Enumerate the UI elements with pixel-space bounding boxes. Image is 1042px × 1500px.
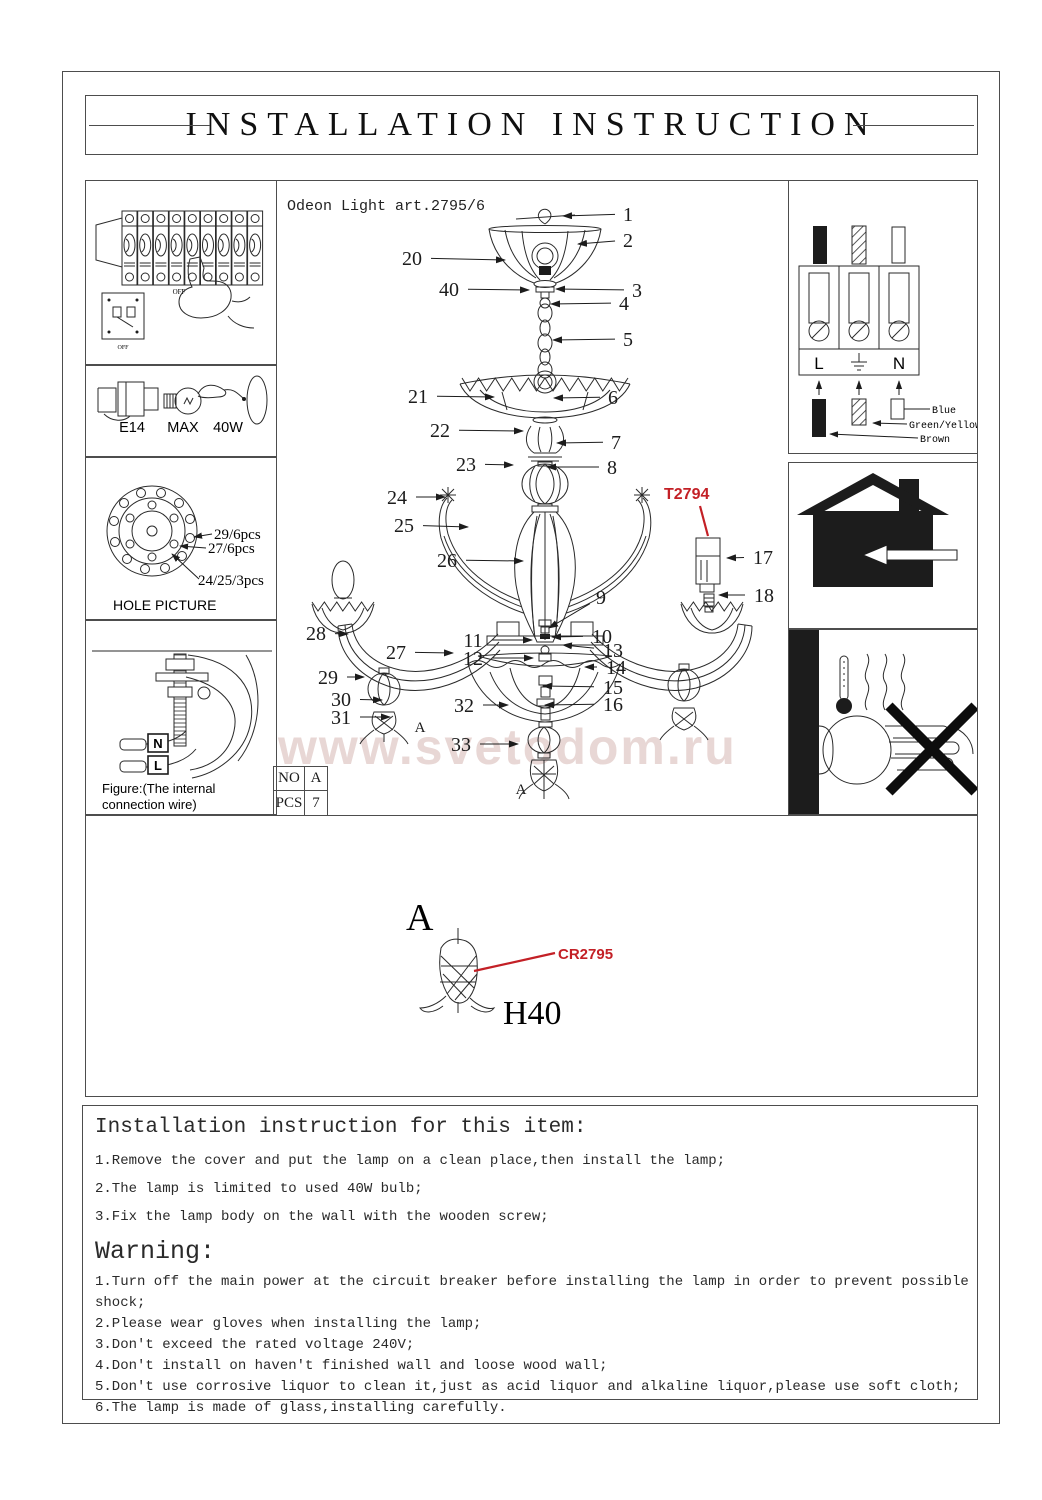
canopy: [489, 226, 601, 288]
leader-line-7: [557, 442, 603, 443]
leader-line-30: [360, 699, 382, 700]
right-pendant: [660, 664, 708, 740]
part-label-24: 24: [387, 487, 407, 509]
part-label-12: 12: [463, 648, 483, 670]
part-label-29: 29: [318, 667, 338, 689]
chandelier-drawing: [312, 209, 752, 799]
instruction-item-3: 3.Fix the lamp body on the wall with the…: [95, 1203, 979, 1231]
part-label-18: 18: [754, 585, 774, 607]
warning-item-2: 2.Please wear gloves when installing the…: [95, 1314, 979, 1335]
red-part-code-t2794: T2794: [664, 486, 709, 503]
detail-a-size: H40: [503, 995, 562, 1032]
warning-item-1: 1.Turn off the main power at the circuit…: [95, 1272, 979, 1314]
title-dash-left: [89, 125, 210, 126]
part-label-16: 16: [603, 694, 623, 716]
part-label-3: 3: [632, 280, 642, 302]
part-label-20: 20: [402, 248, 422, 270]
leader-line-16: [545, 704, 594, 705]
part-label-26: 26: [437, 550, 457, 572]
detail-a-letter: A: [406, 897, 434, 939]
instructions-box: Installation instruction for this item: …: [82, 1105, 978, 1400]
leader-line-40: [468, 289, 529, 290]
part-label-7: 7: [611, 432, 621, 454]
part-label-22: 22: [430, 420, 450, 442]
central-column: [515, 506, 576, 642]
installation-instruction-page: INSTALLATION INSTRUCTION www.svetodom.ru: [0, 0, 1042, 1500]
neck-vase: [526, 426, 563, 461]
red-leader-cr2795: [474, 953, 555, 971]
warning-heading: Warning:: [95, 1237, 979, 1266]
leader-line-4: [551, 303, 611, 304]
part-label-33: 33: [451, 734, 471, 756]
title-dash-right: [853, 125, 974, 126]
detail-a-drawing: A CR2795 H40: [406, 897, 613, 1032]
leader-line-10: [552, 636, 583, 637]
warning-item-4: 4.Don't install on haven't finished wall…: [95, 1356, 979, 1377]
part-label-40: 40: [439, 279, 459, 301]
t2794-sleeve-part: [696, 538, 720, 612]
ceiling-hook: [516, 209, 575, 224]
part-label-2: 2: [623, 230, 633, 252]
detail-tag-bottom: A: [516, 782, 527, 798]
part-label-27: 27: [386, 642, 406, 664]
chandelier-exploded-diagram: 1220403452162272382425261718928101113271…: [85, 180, 978, 1097]
instruction-item-2: 2.The lamp is limited to used 40W bulb;: [95, 1175, 979, 1203]
instructions-heading: Installation instruction for this item:: [95, 1116, 979, 1139]
upper-ball: [522, 462, 568, 508]
detail-tag-left-arm: A: [415, 720, 426, 736]
bottom-finial: [519, 676, 569, 799]
part-label-1: 1: [623, 204, 633, 226]
leader-line-27: [415, 652, 453, 653]
part-label-14: 14: [606, 657, 626, 679]
part-label-5: 5: [623, 329, 633, 351]
lower-dish: [478, 653, 612, 666]
red-part-code-cr2795: CR2795: [558, 946, 613, 963]
leader-line-5: [553, 339, 615, 340]
page-title: INSTALLATION INSTRUCTION: [185, 106, 877, 144]
part-label-23: 23: [456, 454, 476, 476]
part-label-32: 32: [454, 695, 474, 717]
warning-item-5: 5.Don't use corrosive liquor to clean it…: [95, 1377, 979, 1398]
title-box: INSTALLATION INSTRUCTION: [85, 95, 978, 155]
leader-line-25: [423, 526, 468, 527]
red-leader-t2794: [700, 506, 708, 536]
part-label-8: 8: [607, 457, 617, 479]
part-label-21: 21: [408, 386, 428, 408]
warning-item-6: 6.The lamp is made of glass,installing c…: [95, 1398, 979, 1419]
part-label-17: 17: [753, 547, 773, 569]
instruction-item-1: 1.Remove the cover and put the lamp on a…: [95, 1147, 979, 1175]
part-label-25: 25: [394, 515, 414, 537]
leader-line-6: [554, 397, 600, 398]
leader-line-15: [543, 686, 594, 687]
part-label-4: 4: [619, 293, 629, 315]
part-label-9: 9: [596, 587, 606, 609]
part-label-28: 28: [306, 623, 326, 645]
leader-line-22: [459, 430, 523, 431]
big-bowl: [468, 661, 620, 723]
warning-item-3: 3.Don't exceed the rated voltage 240V;: [95, 1335, 979, 1356]
leader-line-3: [556, 289, 624, 290]
leader-line-21: [437, 396, 494, 397]
leader-line-20: [431, 258, 505, 260]
part-label-6: 6: [608, 387, 618, 409]
part-label-31: 31: [331, 707, 351, 729]
leader-line-23: [485, 464, 513, 465]
top-bobeche: [460, 375, 630, 423]
